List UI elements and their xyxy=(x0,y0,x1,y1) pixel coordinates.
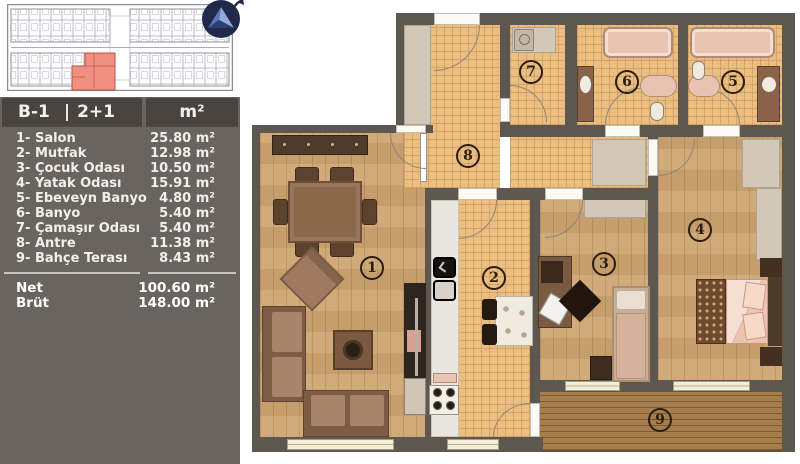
dining-table xyxy=(288,181,362,243)
burner-icon xyxy=(433,401,442,410)
room-marker-bahce-terasi: 9 xyxy=(648,408,672,432)
bedroom-door-gap xyxy=(648,139,658,176)
sideboard-knob xyxy=(355,143,358,146)
dining-chair xyxy=(362,199,377,225)
desk-monitor xyxy=(541,261,563,283)
dining-chair xyxy=(273,199,288,225)
wall xyxy=(528,437,540,452)
parent-bathtub xyxy=(690,27,775,58)
corridor-closet xyxy=(592,139,646,186)
sofa-cushion xyxy=(271,356,303,398)
room-marker-cocuk-odasi: 3 xyxy=(592,252,616,276)
headboard xyxy=(768,277,782,346)
bed-pillow xyxy=(742,312,766,341)
apartment-floorplan: 1 2 3 4 5 6 7 8 9 xyxy=(0,0,800,464)
wall xyxy=(500,125,795,137)
bed-pillow xyxy=(742,282,766,311)
kids-nightstand xyxy=(590,356,612,380)
loveseat-cushion xyxy=(310,394,346,427)
room-marker-mutfak: 2 xyxy=(482,266,506,290)
room-marker-banyo: 6 xyxy=(615,70,639,94)
laundry-door-gap xyxy=(500,98,510,122)
tv-screen xyxy=(415,298,418,376)
dining-chair xyxy=(330,241,354,257)
washing-machine-drum-icon xyxy=(519,34,530,45)
wall xyxy=(678,13,688,125)
kids-bed-blanket xyxy=(616,313,646,379)
terrace-door-gap xyxy=(530,403,540,437)
sofa-cushion xyxy=(271,311,303,353)
salon-window xyxy=(287,439,394,450)
stove-panel xyxy=(433,373,457,383)
burner-icon xyxy=(433,388,442,397)
loveseat-cushion xyxy=(349,394,385,427)
bed-foot-blanket xyxy=(696,279,726,344)
burner-icon xyxy=(446,388,455,397)
sideboard xyxy=(272,135,368,155)
room-marker-ebeveyn-banyo: 5 xyxy=(721,70,745,94)
burner-icon xyxy=(446,401,455,410)
parent-bath-door-gap xyxy=(703,125,740,137)
sideboard-knob xyxy=(283,143,286,146)
room-marker-salon: 1 xyxy=(360,256,384,280)
wall xyxy=(396,25,404,125)
bath-counter xyxy=(640,75,677,97)
room-marker-antre: 8 xyxy=(456,144,480,168)
bathtub xyxy=(603,27,673,58)
kitchen-sink-basin xyxy=(433,280,456,301)
wall xyxy=(252,133,260,452)
kitchen-chair xyxy=(482,299,497,320)
parent-bath-sink xyxy=(761,76,777,93)
sideboard-knob xyxy=(331,143,334,146)
sideboard-knob xyxy=(307,143,310,146)
tv-cabinet xyxy=(404,378,426,415)
kitchen-table xyxy=(495,296,533,346)
room-marker-yatak-odasi: 4 xyxy=(688,218,712,242)
bedroom-closet-strip xyxy=(756,188,782,260)
kitchen-door-gap xyxy=(458,188,497,200)
floorplan-page: B-1 | 2+1 m² 1- Salon25.80 m² 2- Mutfak1… xyxy=(0,0,800,464)
toilet-icon xyxy=(692,61,705,80)
kitchen-chair xyxy=(482,324,497,345)
toilet-icon xyxy=(650,102,664,121)
wall xyxy=(565,13,577,125)
kids-room-window xyxy=(565,381,620,391)
kids-bed-pillow xyxy=(616,290,646,310)
tv-media-box xyxy=(407,330,421,352)
antre-closet xyxy=(404,25,431,125)
salon-door-gap xyxy=(396,125,426,133)
bedroom-wardrobe xyxy=(742,139,780,188)
nightstand xyxy=(760,258,782,277)
bath-door-gap xyxy=(605,125,640,137)
parent-bath-counter xyxy=(688,75,720,97)
kitchen-window xyxy=(447,439,499,450)
kids-room-door-gap xyxy=(545,188,583,200)
nightstand xyxy=(760,347,782,366)
entry-door-gap xyxy=(434,13,480,25)
bedroom-window xyxy=(673,381,750,391)
parent-bath-vanity xyxy=(757,66,780,122)
decor-bowl xyxy=(343,340,363,360)
bath-sink xyxy=(579,75,592,94)
room-marker-camasir-odasi: 7 xyxy=(519,60,543,84)
